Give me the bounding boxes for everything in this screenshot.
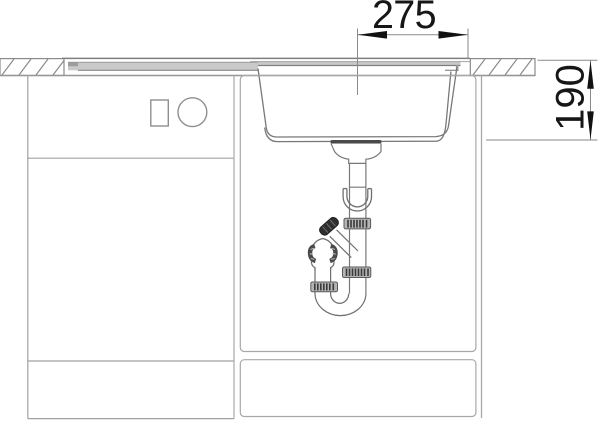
svg-text:275: 275 — [372, 0, 436, 37]
svg-text:190: 190 — [549, 64, 593, 131]
